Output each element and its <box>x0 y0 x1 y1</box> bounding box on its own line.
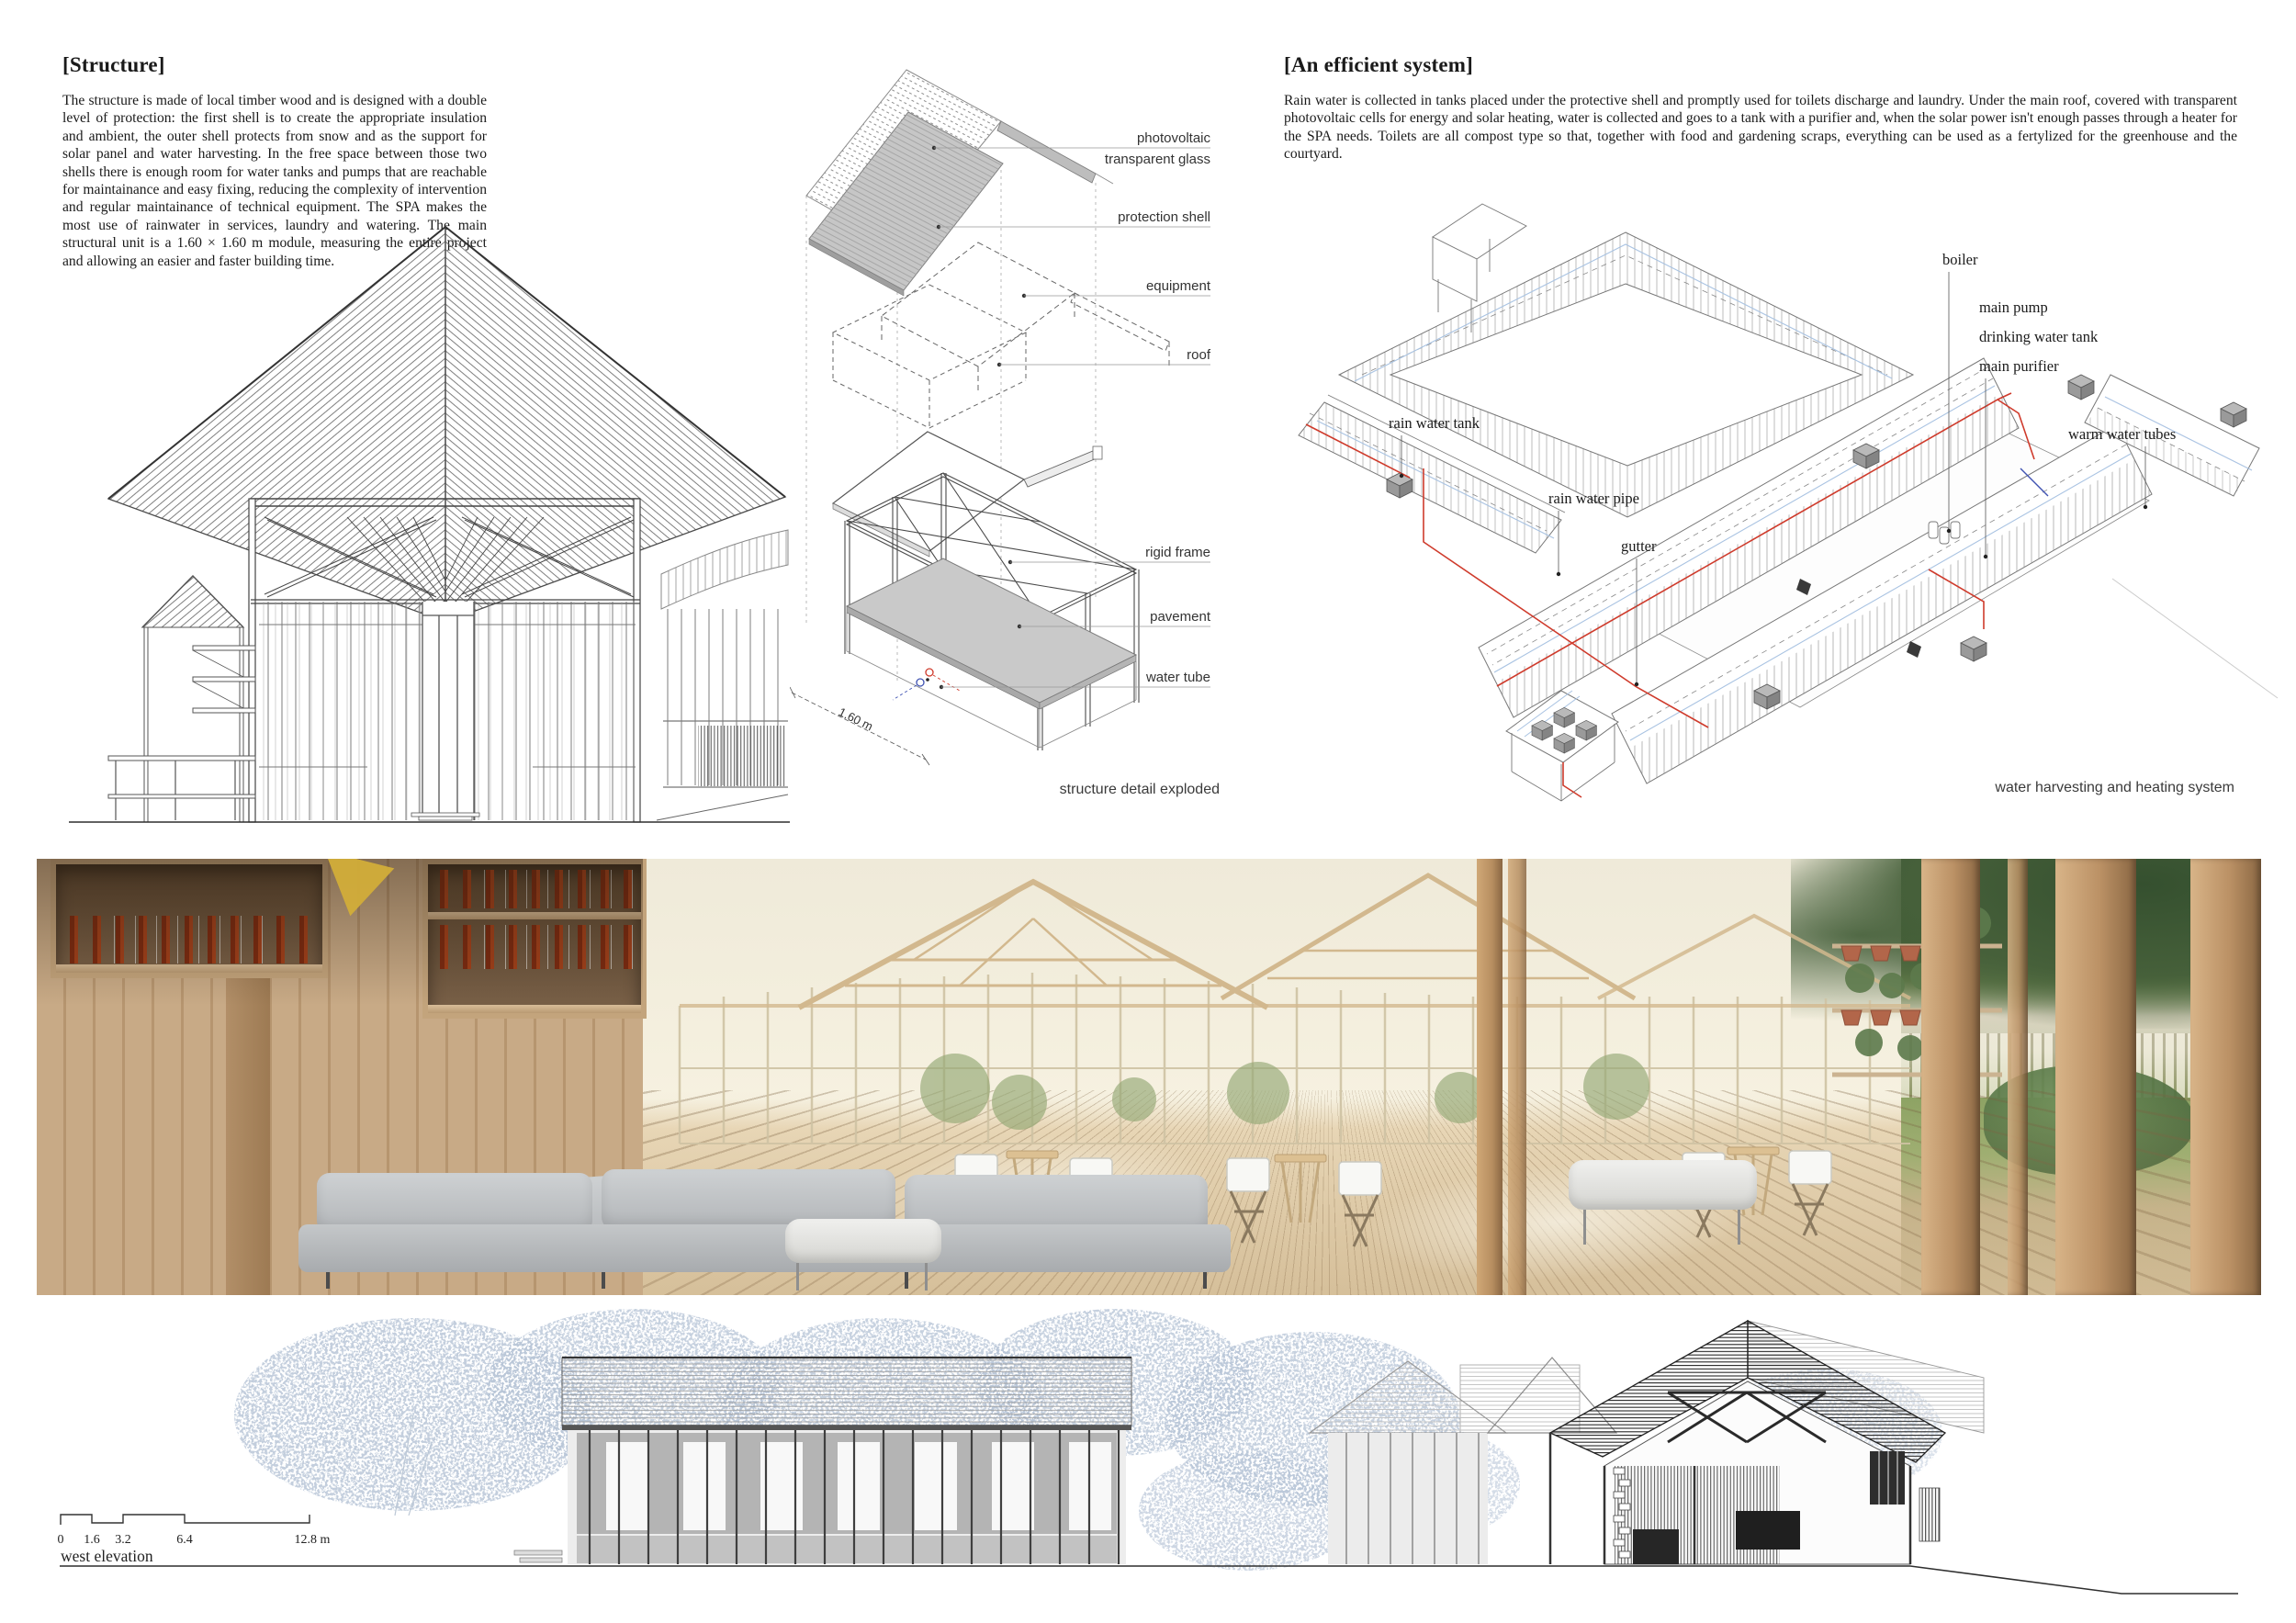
dimension-label: 1.60 m <box>837 704 875 733</box>
label-pavement: pavement <box>1150 609 1211 625</box>
sofa-seat <box>298 1224 1231 1272</box>
ottoman-leg <box>1738 1210 1740 1245</box>
sofa-leg <box>1203 1272 1207 1289</box>
label-rain-water-pipe: rain water pipe <box>1548 490 1639 507</box>
scale-tick-1: 1.6 <box>84 1533 100 1547</box>
ottoman-leg <box>1583 1210 1586 1245</box>
section-annex <box>108 576 255 822</box>
label-boiler: boiler <box>1942 251 1978 268</box>
sofa-leg <box>602 1272 605 1289</box>
label-main-pump: main pump <box>1979 299 2048 316</box>
elevation-dark-building <box>1550 1321 1984 1564</box>
interior-render-photo <box>37 859 2261 1295</box>
render-ottoman <box>785 1219 941 1294</box>
elevation-scale-bar: 0 1.6 3.2 6.4 12.8 m west elevation <box>58 1515 331 1565</box>
render-centre-post <box>1508 859 1526 1295</box>
label-protection-shell: protection shell <box>1118 209 1210 225</box>
water-tube-detail <box>893 669 960 700</box>
protection-shell-ghost <box>882 242 1169 394</box>
render-right-mullion <box>2008 859 2028 1295</box>
photovoltaic-roof-panel <box>806 70 1113 296</box>
render-sofa <box>298 1169 1231 1289</box>
label-equipment: equipment <box>1146 278 1211 294</box>
scale-tick-4: 12.8 m <box>295 1533 331 1547</box>
label-warm-water-tubes: warm water tubes <box>2068 425 2176 443</box>
scale-tick-2: 3.2 <box>115 1533 131 1547</box>
presentation-board: [Structure] The structure is made of loc… <box>0 0 2296 1623</box>
efficient-system-paragraph: Rain water is collected in tanks placed … <box>1284 92 2237 163</box>
section-background-building <box>657 530 788 820</box>
label-drinking-water-tank: drinking water tank <box>1979 328 2099 345</box>
label-main-purifier: main purifier <box>1979 357 2059 375</box>
section-studs <box>259 602 636 820</box>
render-right-column <box>1921 859 1980 1295</box>
scale-tick-3: 6.4 <box>176 1533 193 1547</box>
structure-heading: [Structure] <box>62 53 487 77</box>
scale-tick-0: 0 <box>58 1533 64 1547</box>
structure-section-drawing <box>55 207 804 836</box>
elevation-caption: west elevation <box>61 1547 153 1565</box>
label-rigid-frame: rigid frame <box>1145 545 1210 560</box>
label-water-tube: water tube <box>1145 670 1210 685</box>
label-gutter: gutter <box>1621 537 1657 555</box>
equipment-ghost <box>833 285 1026 428</box>
render-right-column <box>2055 859 2136 1295</box>
label-rain-water-tank: rain water tank <box>1389 414 1480 432</box>
render-right-column <box>2190 859 2261 1295</box>
water-caption: water harvesting and heating system <box>1994 780 2234 795</box>
west-elevation-drawing: 0 1.6 3.2 6.4 12.8 m west elevation <box>0 1304 2296 1623</box>
efficient-system-section: [An efficient system] Rain water is coll… <box>1284 53 2237 163</box>
ottoman-leg <box>925 1263 928 1291</box>
efficient-system-heading: [An efficient system] <box>1284 53 2237 77</box>
render-shelf-board <box>428 1005 641 1013</box>
render-centre-post <box>1477 859 1503 1295</box>
ottoman-leg <box>796 1263 799 1291</box>
label-photovoltaic: photovoltaic <box>1137 130 1211 146</box>
render-ottoman <box>1569 1160 1757 1248</box>
module-dimension: 1.60 m <box>790 687 929 765</box>
water-harvesting-diagram: boiler main pump drinking water tank mai… <box>1286 184 2296 817</box>
label-transparent-glass: transparent glass <box>1105 152 1210 167</box>
elevation-left-building <box>514 1358 1131 1564</box>
exploded-structure-diagram: 1.60 m photovoltaic transparent glass pr… <box>790 39 1223 801</box>
elevation-ground-line <box>60 1566 2238 1594</box>
pavement-slab <box>847 558 1136 748</box>
sofa-leg <box>326 1272 330 1289</box>
section-roof <box>108 227 785 622</box>
section-groundline <box>69 813 790 822</box>
exploded-caption: structure detail exploded <box>1060 782 1220 797</box>
label-roof: roof <box>1187 347 1211 363</box>
